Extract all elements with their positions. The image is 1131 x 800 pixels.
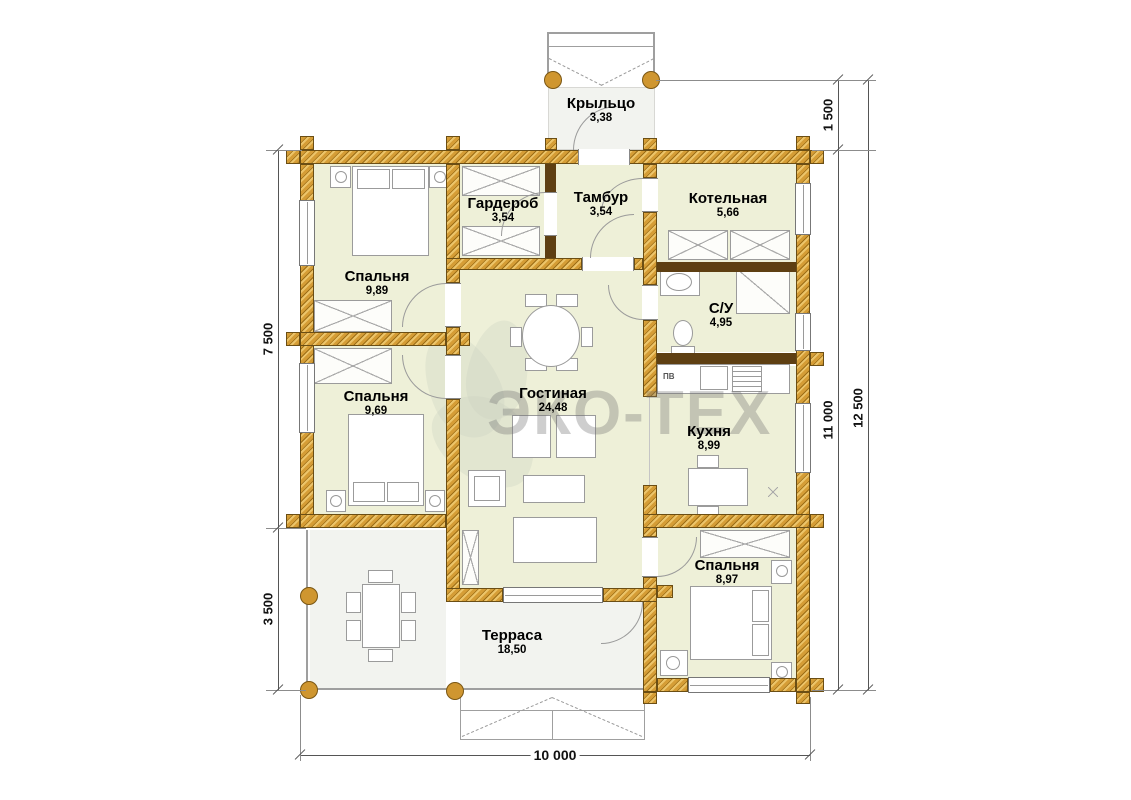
floor-mark — [768, 487, 778, 497]
dimension-left-bottom: 3 500 — [261, 590, 276, 629]
chair — [346, 592, 361, 613]
room-label-living: Гостиная 24,48 — [519, 385, 587, 415]
room-area: 3,38 — [567, 112, 635, 125]
room-name: Гардероб — [468, 195, 539, 212]
chair — [556, 294, 578, 307]
chair — [581, 327, 593, 347]
lamp — [335, 171, 347, 183]
lamp — [776, 565, 788, 577]
floor-passage — [643, 397, 657, 485]
log-stub — [286, 514, 300, 528]
window-boiler — [795, 183, 811, 235]
log-stub — [810, 352, 824, 366]
door-bedroom3 — [642, 537, 658, 577]
dimension-right-house: 11 000 — [821, 397, 836, 442]
wall-right-vertical — [643, 320, 657, 397]
wall-bedroom3-bottom — [770, 678, 796, 692]
window-kitchen — [795, 403, 811, 473]
steps-edge — [460, 695, 461, 740]
log-stub — [796, 136, 810, 150]
dim-ext — [656, 80, 876, 81]
log-stub — [286, 332, 300, 346]
door-wardrobe — [544, 192, 557, 236]
sofa — [513, 517, 597, 563]
room-label-bedroom3: Спальня 8,97 — [695, 557, 760, 587]
terrace-table — [362, 584, 400, 648]
chair — [346, 620, 361, 641]
room-area: 5,66 — [689, 207, 768, 220]
lamp — [776, 666, 788, 678]
log-stub — [286, 150, 300, 164]
coffee-table — [523, 475, 585, 503]
room-label-kitchen: Кухня 8,99 — [687, 423, 731, 453]
wall-bedroom-divider — [300, 332, 446, 346]
partition-wardrobe-vestibule — [545, 236, 556, 258]
room-area: 24,48 — [519, 402, 587, 415]
dim-ext — [812, 150, 876, 151]
passage-floor-line — [649, 397, 650, 485]
log-stub — [545, 138, 557, 150]
window-living-terrace — [503, 587, 603, 603]
terrace-column — [446, 682, 464, 700]
door-bedroom2 — [445, 355, 461, 399]
log-stub — [810, 514, 824, 528]
tv-cabinet-inner — [474, 476, 500, 501]
lamp — [429, 495, 441, 507]
chair — [697, 455, 719, 468]
porch-step-line — [547, 46, 655, 47]
room-label-bedroom1: Спальня 9,89 — [345, 268, 410, 298]
room-name: Спальня — [344, 388, 409, 405]
room-name: Тамбур — [574, 189, 628, 206]
dim-ext — [266, 528, 306, 529]
door-vestibule-living — [582, 257, 634, 271]
wall-right-vertical — [643, 212, 657, 285]
armchair — [512, 415, 551, 458]
room-area: 3,54 — [468, 212, 539, 225]
door-vestibule-boiler — [642, 178, 658, 212]
porch-column — [544, 71, 562, 89]
window-bedroom3 — [688, 677, 770, 693]
room-area: 18,50 — [482, 644, 542, 657]
room-label-vestibule: Тамбур 3,54 — [574, 189, 628, 219]
room-area: 9,89 — [345, 285, 410, 298]
window-bathroom — [795, 313, 811, 351]
wall-top — [300, 150, 810, 164]
dimension-right-total: 12 500 — [851, 385, 866, 431]
log-stub — [643, 138, 657, 150]
dimension-left-top: 7 500 — [261, 320, 276, 359]
vent-label: ПВ — [663, 372, 675, 381]
pillow — [353, 482, 385, 502]
room-label-boiler: Котельная 5,66 — [689, 190, 768, 220]
pillow — [387, 482, 419, 502]
wall-south-left — [300, 514, 446, 528]
floor-plan: ПВ 7 500 3 500 — [0, 0, 1131, 800]
pillow — [357, 169, 390, 189]
room-name: Спальня — [695, 557, 760, 574]
shower — [736, 268, 790, 314]
room-label-bedroom2: Спальня 9,69 — [344, 388, 409, 418]
wardrobe-unit — [462, 166, 540, 196]
chair — [401, 620, 416, 641]
partition-bathroom-kitchen — [657, 353, 796, 364]
dim-ext — [266, 150, 302, 151]
room-name: Спальня — [345, 268, 410, 285]
room-label-porch: Крыльцо 3,38 — [567, 95, 635, 125]
room-name: С/У — [709, 300, 733, 317]
window-bedroom2 — [299, 363, 315, 433]
partition-wardrobe-vestibule — [545, 164, 556, 192]
boiler-equipment — [730, 230, 790, 260]
dimension-right-porch: 1 500 — [821, 96, 836, 135]
pillow — [752, 590, 769, 622]
log-stub — [446, 136, 460, 150]
chair — [368, 570, 393, 583]
door-bathroom — [642, 285, 658, 320]
kitchen-sink — [700, 366, 728, 390]
wall-bedroom3-bottom — [657, 678, 688, 692]
terrace-edge-bottom — [306, 688, 645, 690]
log-stub — [810, 150, 824, 164]
wardrobe-unit — [700, 530, 790, 558]
kitchen-table — [688, 468, 748, 506]
wall-kitchen-bedroom3 — [643, 514, 810, 528]
room-name: Терраса — [482, 627, 542, 644]
armchair — [556, 415, 596, 458]
room-name: Гостиная — [519, 385, 587, 402]
wall-center-vertical — [446, 399, 460, 602]
room-area: 8,99 — [687, 440, 731, 453]
log-stub — [796, 692, 810, 704]
lamp — [666, 656, 680, 670]
wall-living-bottom — [603, 588, 657, 602]
dim-line-left — [278, 150, 279, 690]
room-area: 8,97 — [695, 574, 760, 587]
log-stub — [643, 692, 657, 704]
dining-table — [522, 305, 580, 367]
chair — [401, 592, 416, 613]
partition-boiler-bathroom — [657, 262, 796, 272]
door-bedroom1 — [445, 283, 461, 327]
wall-living-bottom — [446, 588, 503, 602]
room-name: Котельная — [689, 190, 768, 207]
terrace-edge-left — [306, 530, 308, 690]
wardrobe-unit — [314, 300, 392, 332]
steps-roof-dash — [552, 697, 642, 737]
wall-right-vertical — [643, 485, 657, 537]
pillow — [752, 624, 769, 656]
wall-center-vertical — [446, 327, 460, 355]
dim-line-right-outer — [868, 80, 869, 690]
room-area: 9,69 — [344, 405, 409, 418]
porch-step-line — [547, 32, 655, 34]
room-area: 4,95 — [709, 317, 733, 330]
window-bedroom1 — [299, 200, 315, 266]
log-stub — [300, 136, 314, 150]
wall-right-vertical — [643, 164, 657, 178]
chair — [510, 327, 522, 347]
dimension-bottom-width: 10 000 — [531, 747, 580, 763]
dim-line-right-inner — [838, 80, 839, 690]
room-label-wardrobe: Гардероб 3,54 — [468, 195, 539, 225]
pillow — [392, 169, 425, 189]
terrace-column — [300, 587, 318, 605]
lamp — [330, 495, 342, 507]
chair — [368, 649, 393, 662]
cabinet — [462, 530, 479, 585]
wall-mid-horizontal — [634, 258, 643, 270]
room-area: 3,54 — [574, 206, 628, 219]
steps-edge — [552, 710, 553, 740]
wall-mid-horizontal — [446, 258, 582, 270]
room-name: Крыльцо — [567, 95, 635, 112]
steps-roof-dash — [462, 697, 552, 737]
boiler-equipment — [668, 230, 728, 260]
door-entrance — [578, 149, 630, 165]
room-label-terrace: Терраса 18,50 — [482, 627, 542, 657]
kitchen-stove — [732, 366, 762, 392]
log-stub — [460, 332, 470, 346]
dim-ext — [266, 690, 306, 691]
room-name: Кухня — [687, 423, 731, 440]
lamp — [434, 171, 446, 183]
room-label-bathroom: С/У 4,95 — [709, 300, 733, 330]
wardrobe-unit — [314, 348, 392, 384]
log-stub — [657, 585, 673, 598]
toilet — [673, 320, 693, 346]
sink — [666, 273, 692, 291]
